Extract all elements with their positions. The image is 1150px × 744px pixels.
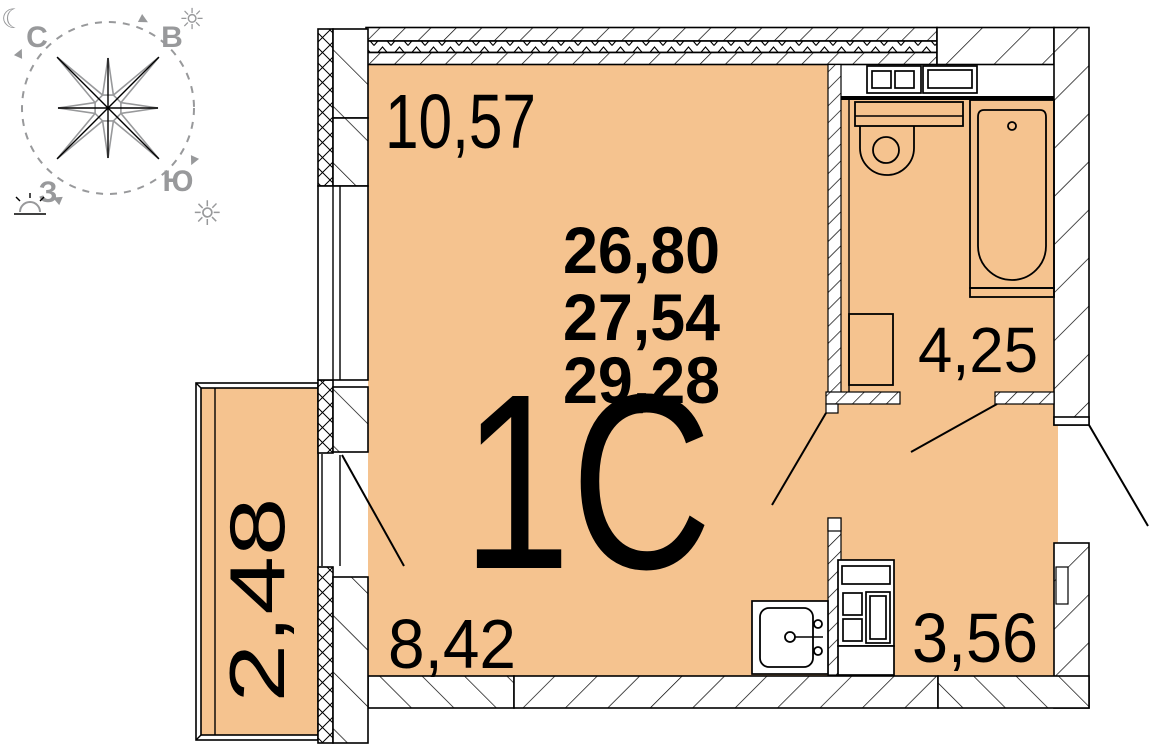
left-wall-block2 <box>333 118 368 186</box>
vent-boxes <box>841 66 1054 100</box>
room-hall-opening-floor <box>828 404 841 519</box>
sun-icon-large: ☼ <box>192 194 222 234</box>
left-wall-block4 <box>333 577 368 743</box>
bottom-wall-seg2 <box>514 676 938 708</box>
entrance-gap-floor <box>1054 425 1058 543</box>
top-wall-band1 <box>366 28 937 42</box>
bathroom-south-wall-left <box>826 392 900 404</box>
top-wall-right-section <box>937 28 1054 65</box>
compass-star-icon <box>57 57 159 159</box>
left-wall-block3 <box>333 387 368 452</box>
partition-bathroom <box>828 65 841 393</box>
top-wall-zigzag-band <box>366 41 937 53</box>
sun-icon: ☼ <box>179 2 205 36</box>
entrance-wall-cap <box>1054 417 1089 425</box>
right-wall-upper <box>1054 28 1089 426</box>
stove-cabinet <box>838 560 894 675</box>
left-wall-insulation-top <box>318 29 333 186</box>
bathroom-south-wall-right <box>995 392 1054 404</box>
bath-door-floor <box>900 392 995 405</box>
compass-south-label: Ю <box>163 165 194 198</box>
door-post-box <box>826 404 838 413</box>
left-wall-block1 <box>333 29 368 118</box>
floor-plan-drawing: 10,57 26,80 27,54 29,28 1С 4,25 8,42 3,5… <box>0 0 1150 744</box>
unit-type-label: 1С <box>462 342 712 621</box>
kitchen-sink <box>752 601 828 674</box>
living-area-label: 10,57 <box>385 79 536 165</box>
compass-north-label: С <box>26 21 48 54</box>
floor-plan-page: 10,57 26,80 27,54 29,28 1С 4,25 8,42 3,5… <box>0 0 1150 744</box>
kitchen-area-label: 8,42 <box>388 605 516 683</box>
left-wall-insulation-bottom <box>318 567 333 743</box>
entrance-frame-notch <box>1056 567 1068 604</box>
balcony-area-label: 2,48 <box>213 498 301 703</box>
partition-hallway-cap <box>828 518 841 531</box>
moon-icon: ☾ <box>1 4 25 35</box>
left-wall-insulation-mid <box>318 380 333 453</box>
top-wall-band3 <box>366 53 937 65</box>
hallway-area-label: 3,56 <box>912 599 1038 677</box>
bottom-wall-seg3 <box>938 676 1089 708</box>
compass-rose: С В З Ю ☾ ☼ ☼ <box>1 2 222 234</box>
area-summary-line1: 26,80 <box>563 213 720 287</box>
compass-west-label: З <box>39 176 58 209</box>
bathroom-area-label: 4,25 <box>918 314 1038 386</box>
entrance-door-swing <box>1089 425 1148 526</box>
window-left <box>318 186 368 380</box>
